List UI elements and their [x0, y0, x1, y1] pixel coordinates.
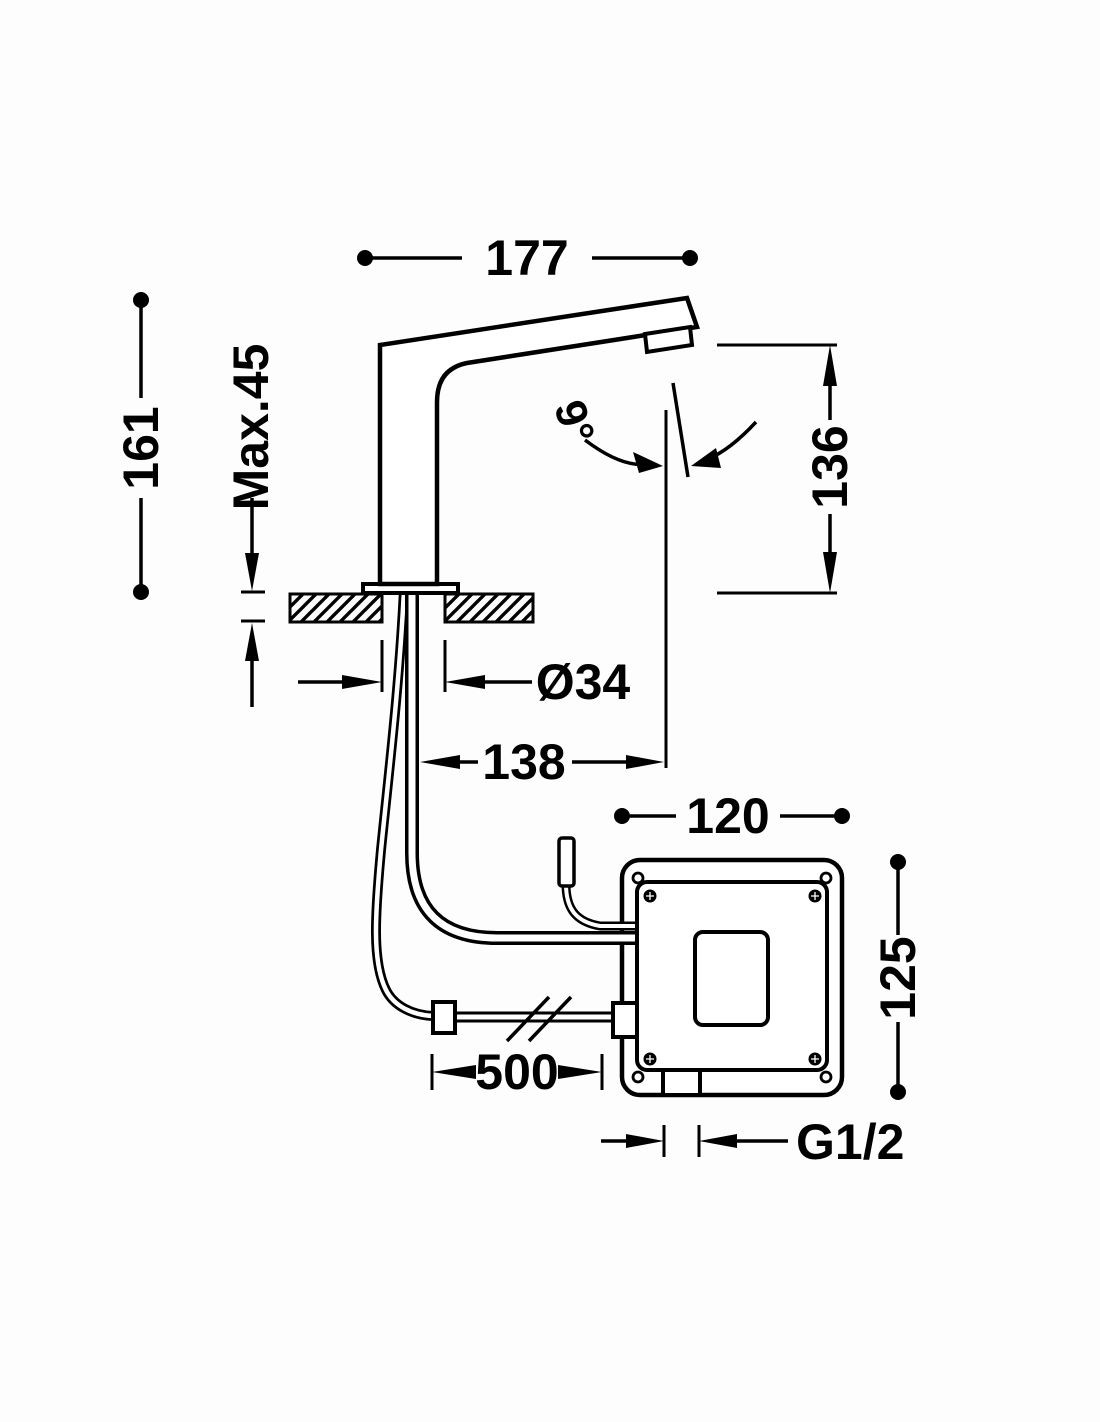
countertop-hatch-right — [445, 594, 533, 622]
box-left-connector — [613, 1003, 637, 1037]
hose-end-connector — [433, 1002, 455, 1033]
angle-arrowhead-left — [633, 452, 663, 473]
angle-arrowhead-right — [691, 448, 721, 468]
box-bottom-connector — [663, 1070, 700, 1095]
stream-tilted-line — [673, 383, 688, 477]
dim-arrowhead-left — [420, 755, 460, 769]
dim-outlet-height-label: 136 — [802, 425, 858, 508]
dim-overall-height: 161 — [113, 292, 169, 600]
connection-hose-500 — [454, 997, 618, 1041]
faucet-technical-drawing: 9° 177 161 Max.45 136 Ø34 — [0, 0, 1100, 1422]
dim-arrowhead-up — [823, 345, 837, 386]
dim-extension-ticks — [664, 1125, 699, 1157]
dim-arrowhead-up — [245, 623, 259, 661]
dim-hole-diameter: Ø34 — [298, 640, 630, 710]
dim-arrowhead-right — [626, 1134, 664, 1148]
mounting-hole — [633, 1072, 643, 1082]
dim-outlet-height: 136 — [717, 345, 858, 593]
mounting-hole — [821, 873, 831, 883]
drawing-page: 9° 177 161 Max.45 136 Ø34 — [0, 0, 1100, 1422]
dim-box-height: 125 — [870, 854, 926, 1100]
dim-arrowhead-right — [558, 1065, 602, 1079]
dim-box-width-label: 120 — [686, 788, 769, 844]
dim-spout-reach-label: 177 — [485, 230, 568, 286]
dim-extension-ticks — [241, 592, 265, 621]
faucet — [363, 298, 697, 593]
countertop-hatch-left — [290, 594, 382, 622]
mounting-hole — [633, 873, 643, 883]
inlet-hose-left — [376, 590, 433, 1016]
mounting-hole — [821, 1072, 831, 1082]
dim-box-height-label: 125 — [870, 936, 926, 1019]
dim-overall-height-label: 161 — [113, 406, 169, 489]
dim-arrowhead-right — [342, 675, 382, 689]
dim-arrowhead-right — [626, 755, 664, 769]
dim-outlet-offset: 138 — [420, 734, 664, 790]
control-box — [622, 860, 842, 1095]
angle-annotation: 9° — [544, 383, 756, 768]
dim-arrowhead-left — [432, 1065, 476, 1079]
dim-max-deck-thickness: Max.45 — [223, 344, 279, 707]
cable-terminal — [559, 838, 574, 886]
dim-stream-angle-label: 9° — [544, 394, 604, 449]
dim-hose-length: 500 — [432, 1044, 602, 1100]
dim-outlet-offset-label: 138 — [482, 734, 565, 790]
dim-arrowhead-left — [699, 1134, 737, 1148]
dim-arrowhead-left — [445, 675, 485, 689]
dim-arrowhead-down — [823, 552, 837, 593]
dim-hose-length-label: 500 — [475, 1044, 558, 1100]
dim-thread-size: G1/2 — [601, 1114, 904, 1170]
dim-box-width: 120 — [614, 788, 850, 844]
dim-max-deck-label: Max.45 — [223, 344, 279, 511]
dim-thread-size-label: G1/2 — [796, 1114, 904, 1170]
dim-arrowhead-down — [245, 553, 259, 591]
dim-hole-diameter-label: Ø34 — [536, 654, 631, 710]
dim-spout-reach: 177 — [357, 230, 698, 286]
